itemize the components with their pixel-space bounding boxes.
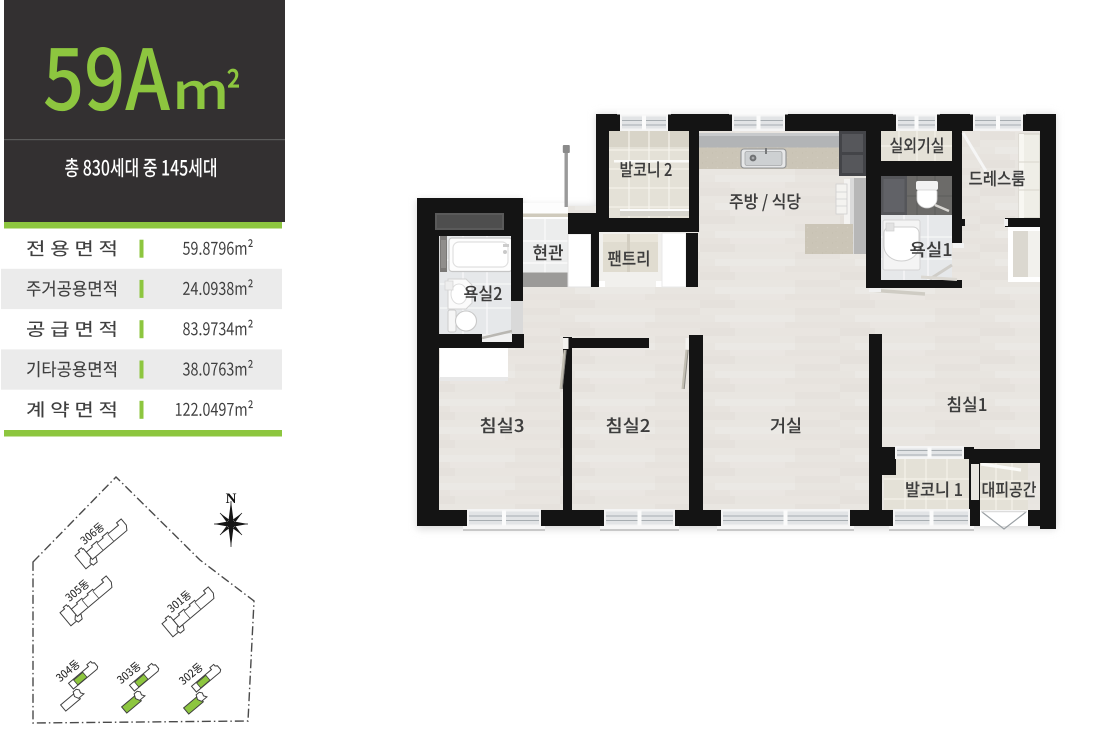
svg-text:N: N xyxy=(226,491,237,507)
